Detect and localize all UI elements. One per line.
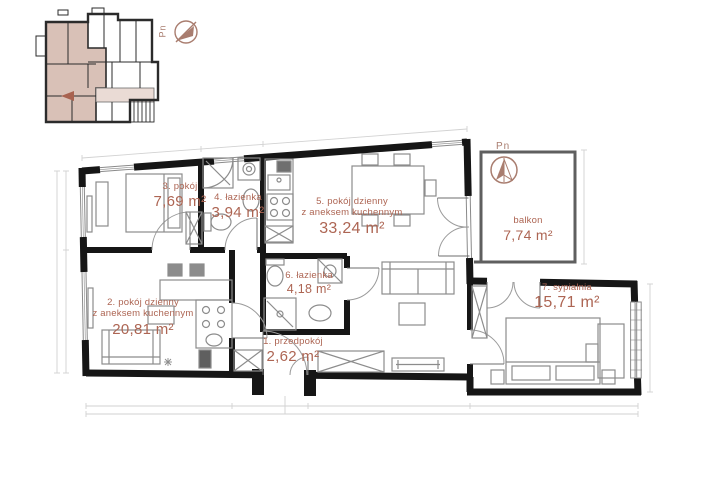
- bedroom7-furniture: [472, 286, 624, 384]
- compass-main-label: Pn: [496, 141, 510, 152]
- bar-stool: [190, 264, 204, 276]
- sofa: [102, 330, 160, 364]
- kitchen5-furniture: [265, 159, 293, 243]
- kitchen-counter: [196, 300, 232, 348]
- sink-icon: [243, 189, 259, 211]
- stove-icon: [203, 307, 225, 328]
- floor-drain-icon: [164, 358, 172, 366]
- chair: [586, 344, 598, 362]
- entrance-jamb: [304, 370, 316, 396]
- compass-mini-icon: [175, 21, 197, 43]
- coffee-table: [399, 303, 425, 325]
- compass-main-icon: [491, 157, 517, 183]
- minimap-stairs: [130, 100, 154, 122]
- sink-icon: [206, 334, 222, 346]
- minimap-apartment-highlight: [46, 22, 106, 122]
- pillow: [556, 366, 594, 380]
- table: [148, 306, 174, 324]
- dining-table: [352, 166, 424, 214]
- minimap: [36, 8, 158, 122]
- pillow: [512, 366, 550, 380]
- bathroom6-furniture: [264, 259, 342, 330]
- dresser: [96, 182, 108, 226]
- bathroom4-furniture: [203, 158, 260, 231]
- nightstand: [491, 370, 504, 384]
- washing-machine-icon: [318, 259, 342, 283]
- closet-icon: [234, 350, 262, 371]
- floor-plan-drawing: [0, 0, 706, 500]
- toilet-icon: [266, 259, 284, 286]
- living5-sofa-set: [382, 262, 454, 325]
- outer-walls: [82, 139, 641, 395]
- pillow: [168, 178, 180, 228]
- radiator: [87, 196, 92, 232]
- floor-plan-page: 3. pokój 7,69 m² 4. łazienka 3,94 m² 5. …: [0, 0, 706, 500]
- room2-furniture: [88, 264, 232, 368]
- toilet-icon: [204, 213, 231, 231]
- fridge-icon: [265, 226, 293, 242]
- dining-table-set: [352, 154, 436, 226]
- hallway-furniture: [234, 350, 444, 372]
- bed: [126, 174, 182, 232]
- radiator: [88, 288, 93, 328]
- room3-furniture: [87, 174, 202, 244]
- wardrobe-icon: [472, 286, 487, 338]
- extractor-icon: [277, 161, 291, 172]
- balcony-walls: [474, 152, 575, 262]
- shower-icon: [264, 298, 296, 330]
- nightstand: [602, 370, 615, 384]
- wardrobe-icon: [318, 351, 384, 372]
- stove-icon: [267, 194, 293, 220]
- entrance-jamb: [252, 369, 264, 395]
- bench-icon: [392, 358, 444, 371]
- compass-mini-label: Pn: [158, 24, 168, 37]
- sink-icon: [309, 305, 331, 321]
- kitchen-counter: [160, 280, 232, 300]
- bedroom-window: [630, 302, 642, 378]
- bar-stool: [168, 264, 182, 276]
- trash-bin: [199, 350, 211, 368]
